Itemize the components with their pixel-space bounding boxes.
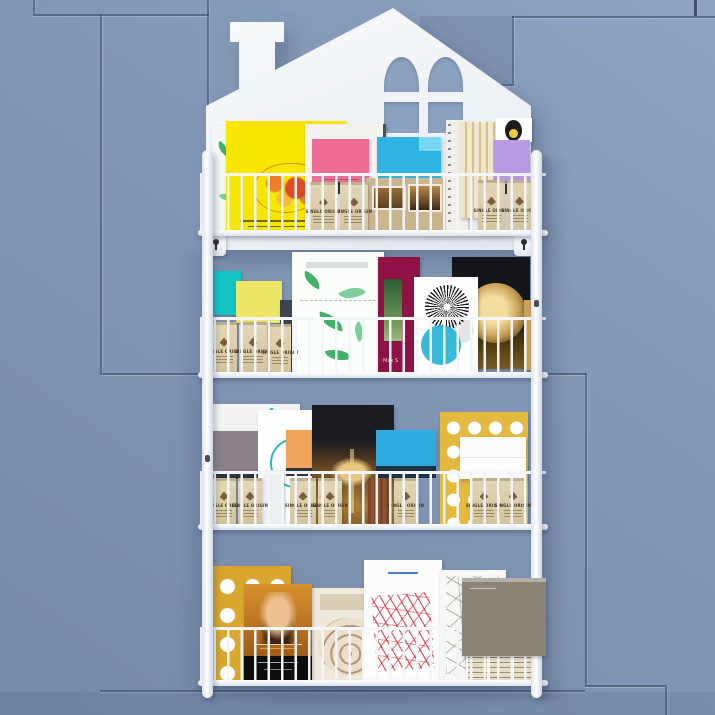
wall-groove xyxy=(100,14,102,373)
wall-groove xyxy=(100,373,206,375)
wire-basket-shelf-1 xyxy=(200,173,546,236)
basket-wires xyxy=(200,173,546,231)
rail-clip xyxy=(534,300,539,307)
wall-groove xyxy=(694,0,697,16)
wall-groove xyxy=(585,373,587,685)
dashed-line xyxy=(300,300,376,301)
product-photo-house-book-rack: SINGLE ORIGIN SINGLE ORIGIN SINGLE ORIGI… xyxy=(0,0,715,715)
wall-groove xyxy=(33,0,35,14)
taupe-book xyxy=(462,578,546,656)
side-rail-left xyxy=(202,150,213,698)
box-seam xyxy=(460,457,526,458)
window-pane-bottom-left xyxy=(384,102,419,133)
basket-wires xyxy=(200,317,546,373)
wire-basket-shelf-3 xyxy=(200,471,546,530)
cyan-corner xyxy=(419,137,441,151)
yellow-dot xyxy=(509,129,518,138)
edge-highlight xyxy=(462,578,546,582)
wire-basket-shelf-2 xyxy=(200,317,546,378)
spine-label xyxy=(470,588,496,589)
blue-title-text xyxy=(388,572,418,574)
title-band xyxy=(306,262,368,268)
rack-shadow-left xyxy=(176,248,204,692)
basket-wires xyxy=(200,471,546,525)
rail-clip xyxy=(205,455,210,462)
keyhole-screw-icon xyxy=(521,239,527,245)
keyhole-screw-icon xyxy=(213,239,219,245)
black-gold-blob-magazine xyxy=(496,118,532,142)
wall-lower-shade xyxy=(0,692,715,715)
wall-groove xyxy=(585,685,665,687)
leaf-shape xyxy=(300,270,323,289)
leaf-shape xyxy=(338,281,366,306)
blue-box xyxy=(376,430,436,468)
